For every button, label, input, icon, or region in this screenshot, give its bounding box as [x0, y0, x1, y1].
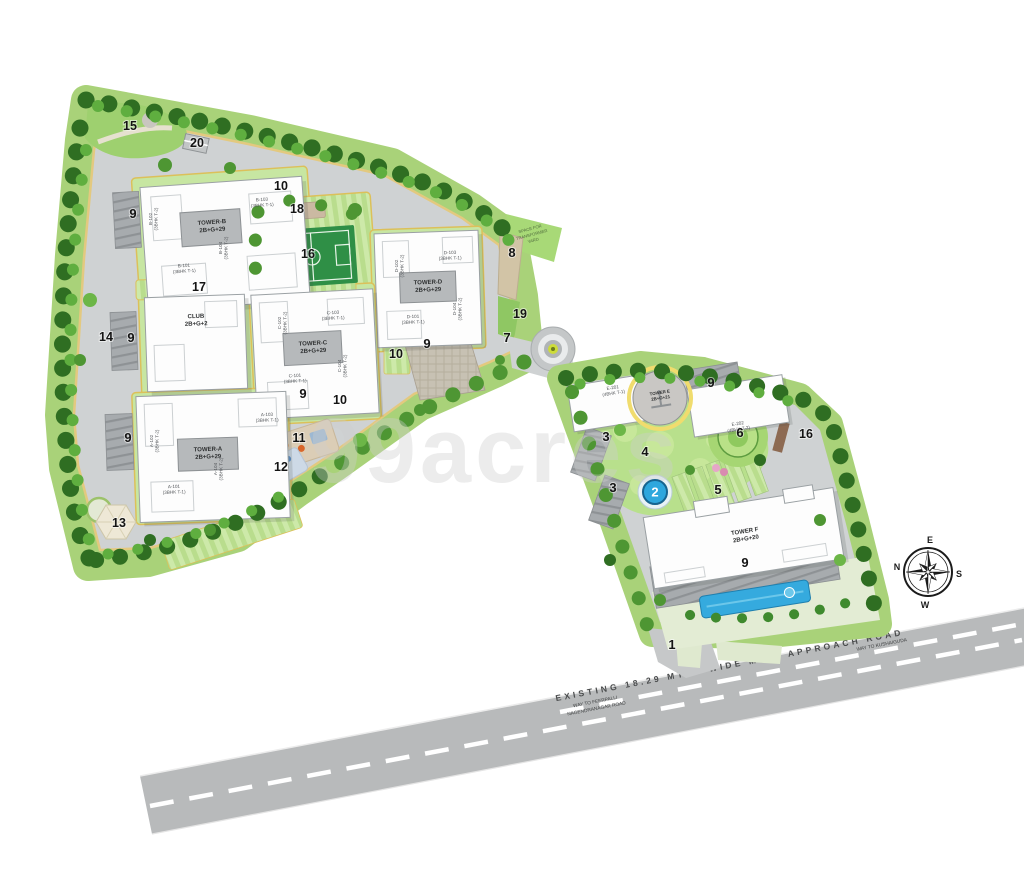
marker-20: 20 [190, 136, 204, 150]
marker-10: 10 [389, 347, 403, 361]
marker-19: 19 [513, 307, 527, 321]
marker-9: 9 [124, 430, 131, 445]
marker-2: 2 [651, 485, 658, 500]
compass-bottom: W [921, 600, 930, 610]
marker-4: 4 [641, 444, 649, 459]
east-cluster [560, 348, 880, 678]
parking-west-1 [113, 191, 142, 248]
marker-9: 9 [423, 336, 430, 351]
marker-10: 10 [333, 393, 347, 407]
marker-7: 7 [503, 330, 510, 345]
marker-5: 5 [714, 482, 721, 497]
compass-left: N [894, 562, 901, 572]
marker-9: 9 [299, 386, 306, 401]
flower-bed [720, 468, 728, 476]
marker-9: 9 [129, 206, 136, 221]
marker-6: 6 [736, 425, 743, 440]
site-plan: EXISTING 18.29 MTRS WIDE MAIN APPROACH R… [0, 0, 1024, 875]
flower-bed [712, 464, 720, 472]
marker-3: 3 [602, 429, 609, 444]
compass-top: E [927, 535, 933, 545]
compass-right: S [956, 569, 962, 579]
marker-15: 15 [123, 119, 137, 133]
marker-9: 9 [127, 330, 134, 345]
marker-8: 8 [508, 245, 515, 260]
marker-16: 16 [301, 247, 315, 261]
marker-9: 9 [707, 375, 714, 390]
marker-13: 13 [112, 516, 126, 530]
marker-18: 18 [290, 202, 304, 216]
marker-14: 14 [99, 330, 113, 344]
marker-10: 10 [274, 179, 288, 193]
club-footprint [144, 294, 251, 396]
watermark: 99acres [310, 400, 681, 502]
marker-16: 16 [799, 427, 813, 441]
marker-3: 3 [609, 480, 616, 495]
compass-rose: E N S W [894, 535, 962, 610]
marker-11: 11 [292, 431, 305, 445]
marker-9: 9 [741, 555, 748, 570]
main-approach-road: EXISTING 18.29 MTRS WIDE MAIN APPROACH R… [140, 608, 1024, 834]
marker-12: 12 [274, 460, 288, 474]
marker-1: 1 [668, 637, 675, 652]
marker-17: 17 [192, 280, 206, 294]
